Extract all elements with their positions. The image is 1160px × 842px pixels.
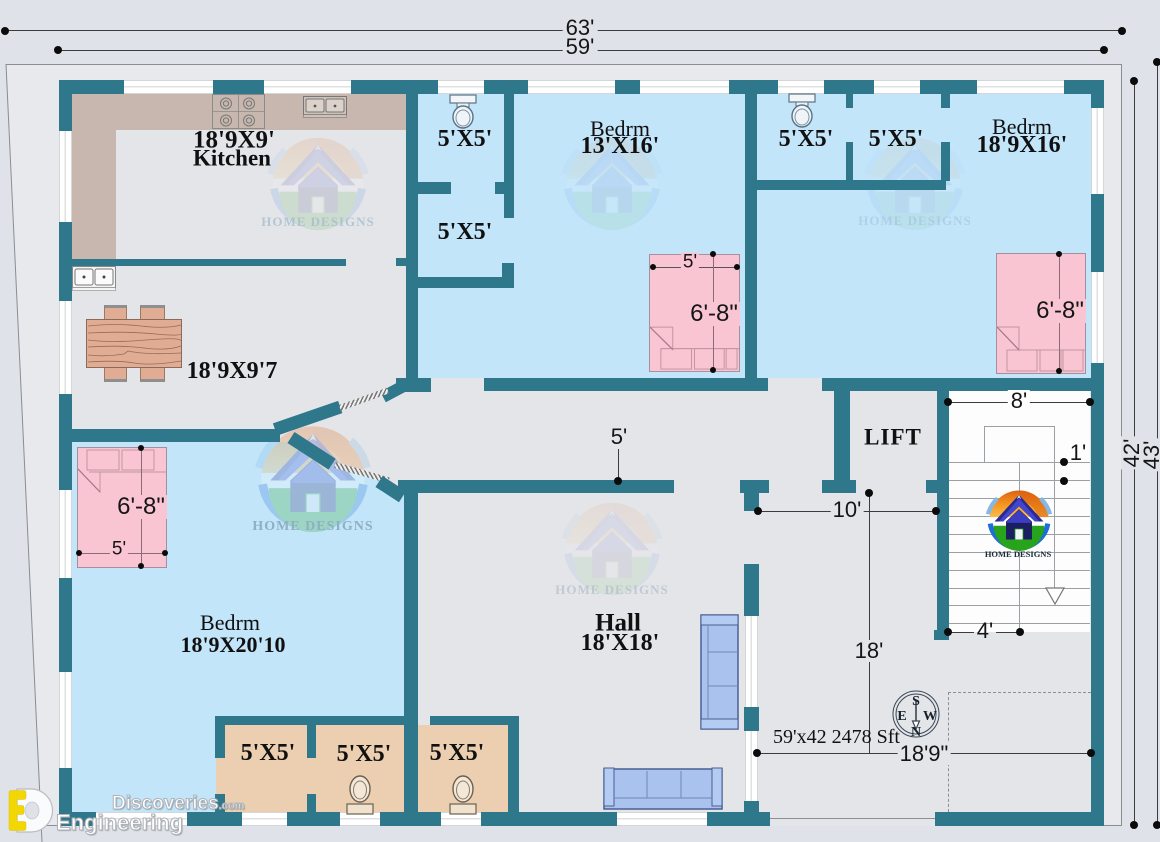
svg-text:N: N	[911, 725, 921, 739]
svg-text:W: W	[923, 709, 937, 724]
svg-text:E: E	[897, 709, 906, 724]
svg-text:S: S	[912, 694, 920, 709]
